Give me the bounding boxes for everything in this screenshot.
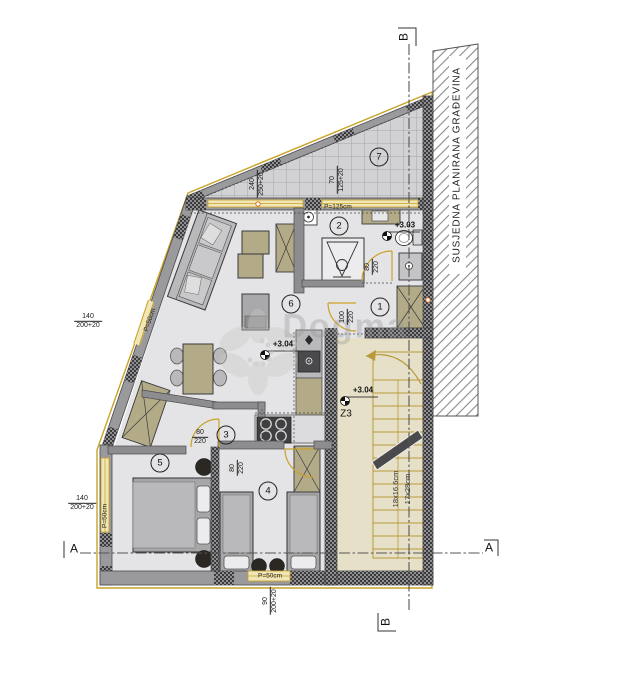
wall-right: [423, 96, 433, 585]
section-b-top: B: [397, 33, 410, 41]
dim-door-bath: 80 220: [364, 259, 380, 275]
dim-value: 80: [192, 429, 208, 438]
wall-block: [290, 571, 433, 585]
dim-window-left-upper: 140 200+20: [74, 313, 102, 329]
dim-door-room4: 80 220: [229, 460, 245, 476]
dim-value: 90: [262, 587, 271, 615]
room-number-3: 3: [217, 426, 236, 445]
dim-value: 100: [339, 309, 348, 325]
room-number-5: 5: [151, 454, 170, 473]
dim-value: 200+20: [74, 322, 102, 330]
survey-dot: [426, 298, 430, 302]
dim-value: 220: [348, 309, 356, 325]
dim-value: 240: [249, 170, 258, 198]
dim-value: 70: [329, 166, 338, 194]
section-a-right: A: [485, 541, 493, 554]
wall-block: [186, 198, 206, 210]
shower: [322, 238, 364, 283]
parapet-label-top: P=125cm: [324, 203, 352, 210]
parapet-label-bottom: P=50cm: [258, 572, 282, 579]
dim-value: 200+20: [68, 504, 96, 512]
stair-risers-label: 18x16.6cm: [392, 471, 400, 508]
dim-window-bottom: 90 200+20: [262, 587, 278, 615]
wall-block: [100, 533, 112, 547]
stair-treads-label: 17x28cm: [404, 474, 412, 504]
survey-dot: [256, 202, 260, 206]
dim-door-hall: 100 220: [339, 309, 355, 325]
cabinet-living: [276, 224, 296, 272]
level-living: +3.04: [273, 341, 293, 350]
wall-block: [305, 198, 321, 210]
level-bath: +3.03: [395, 222, 415, 231]
wall-hall3-top: [213, 402, 265, 409]
wall-stairwell-left: [325, 330, 337, 585]
dim-value: 140: [68, 495, 96, 504]
stair-zone-label: Z3: [340, 409, 352, 420]
room-number-4: 4: [259, 482, 278, 501]
dim-value: 200+20: [271, 587, 279, 615]
wardrobe-room4: [294, 446, 320, 492]
dim-terrace-east: 70 125+20: [329, 166, 345, 194]
wall-hall3-right: [258, 402, 265, 417]
neighbor-building-label: SUSJEDNA PLANIRANA GRAĐEVINA: [452, 67, 463, 263]
dim-value: 80: [364, 259, 373, 275]
single-bed-left: [220, 492, 253, 572]
section-a-left: A: [70, 542, 78, 555]
dim-value: 80: [229, 460, 238, 476]
dim-value: 220: [238, 460, 246, 476]
wall-room4-top-right: [314, 441, 332, 449]
level-stair: +3.04: [353, 387, 373, 396]
room-number-6: 6: [282, 295, 301, 314]
bath-sink: [399, 253, 422, 280]
dim-value: 220: [192, 438, 208, 446]
wall-room5-top: [108, 446, 186, 454]
double-bed: [133, 478, 212, 552]
dim-door-room5: 80 220: [192, 429, 208, 445]
floor-plan-canvas: Dogma 1 2 3 4 5 6 7 +3.03 +3.04 +3.04 Z3…: [0, 0, 642, 677]
room-number-1: 1: [371, 298, 390, 317]
parapet-label-left-lower: P=50cm: [101, 504, 108, 528]
wall-block: [214, 571, 234, 585]
dim-terrace-west: 240 250+20: [249, 170, 265, 198]
dim-value: 125+20: [338, 166, 346, 194]
room-number-7: 7: [370, 148, 389, 167]
wall-rooms-4-5-divider: [211, 447, 219, 571]
dim-window-left-lower: 140 200+20: [68, 495, 96, 511]
room-number-2: 2: [330, 217, 349, 236]
single-bed-right: [287, 492, 320, 572]
dim-value: 250+20: [258, 170, 266, 198]
dim-value: 140: [74, 313, 102, 322]
dim-value: 220: [373, 259, 381, 275]
wall-bath-bottom: [302, 280, 364, 287]
section-b-bottom: B: [379, 618, 392, 626]
